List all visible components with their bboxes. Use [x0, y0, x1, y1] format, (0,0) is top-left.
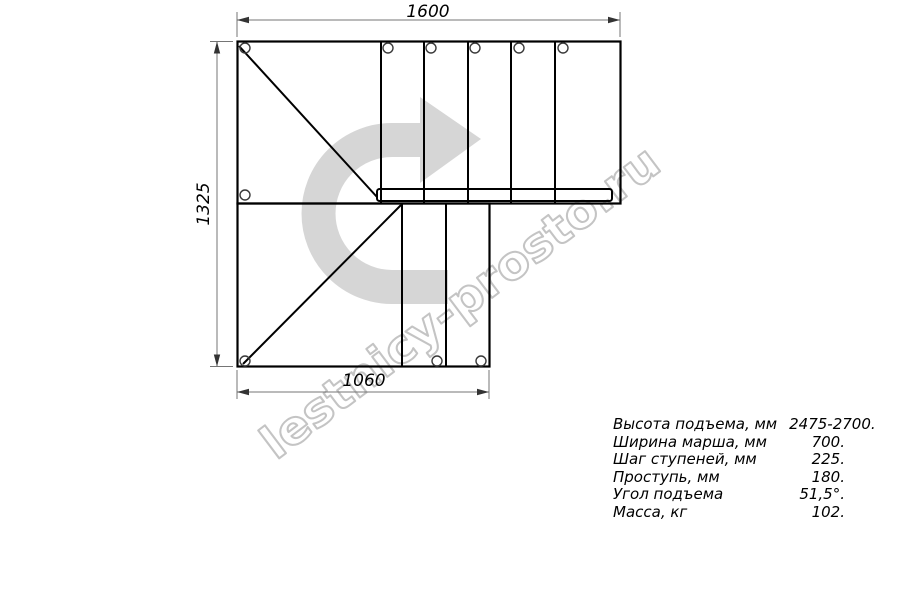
stair-drawing-page: lestnicy-prosto.ru [0, 0, 900, 600]
spec-label: Высота подъема, мм [613, 416, 777, 434]
spec-row: Проступь, мм 180. [613, 469, 845, 487]
spec-table: Высота подъема, мм 2475-2700. Ширина мар… [613, 416, 845, 521]
spec-label: Проступь, мм [613, 469, 720, 487]
spec-value: 51,5°. [799, 486, 845, 504]
spec-row: Шаг ступеней, мм 225. [613, 451, 845, 469]
dimension-label-left: 1325 [194, 182, 214, 225]
spec-label: Шаг ступеней, мм [613, 451, 757, 469]
spec-value: 2475-2700. [789, 416, 876, 434]
spec-row: Ширина марша, мм 700. [613, 434, 845, 452]
spec-row: Угол подъема 51,5°. [613, 486, 845, 504]
spec-row: Высота подъема, мм 2475-2700. [613, 416, 845, 434]
spec-label: Ширина марша, мм [613, 434, 767, 452]
spec-label: Угол подъема [613, 486, 723, 504]
spec-value: 700. [812, 434, 845, 452]
dimension-label-bottom: 1060 [342, 371, 385, 391]
spec-label: Масса, кг [613, 504, 687, 522]
spec-value: 225. [812, 451, 845, 469]
direction-arrow-icon [319, 97, 481, 287]
spec-value: 102. [812, 504, 845, 522]
dimension-label-top: 1600 [406, 2, 449, 22]
spec-value: 180. [812, 469, 845, 487]
spec-row: Масса, кг 102. [613, 504, 845, 522]
